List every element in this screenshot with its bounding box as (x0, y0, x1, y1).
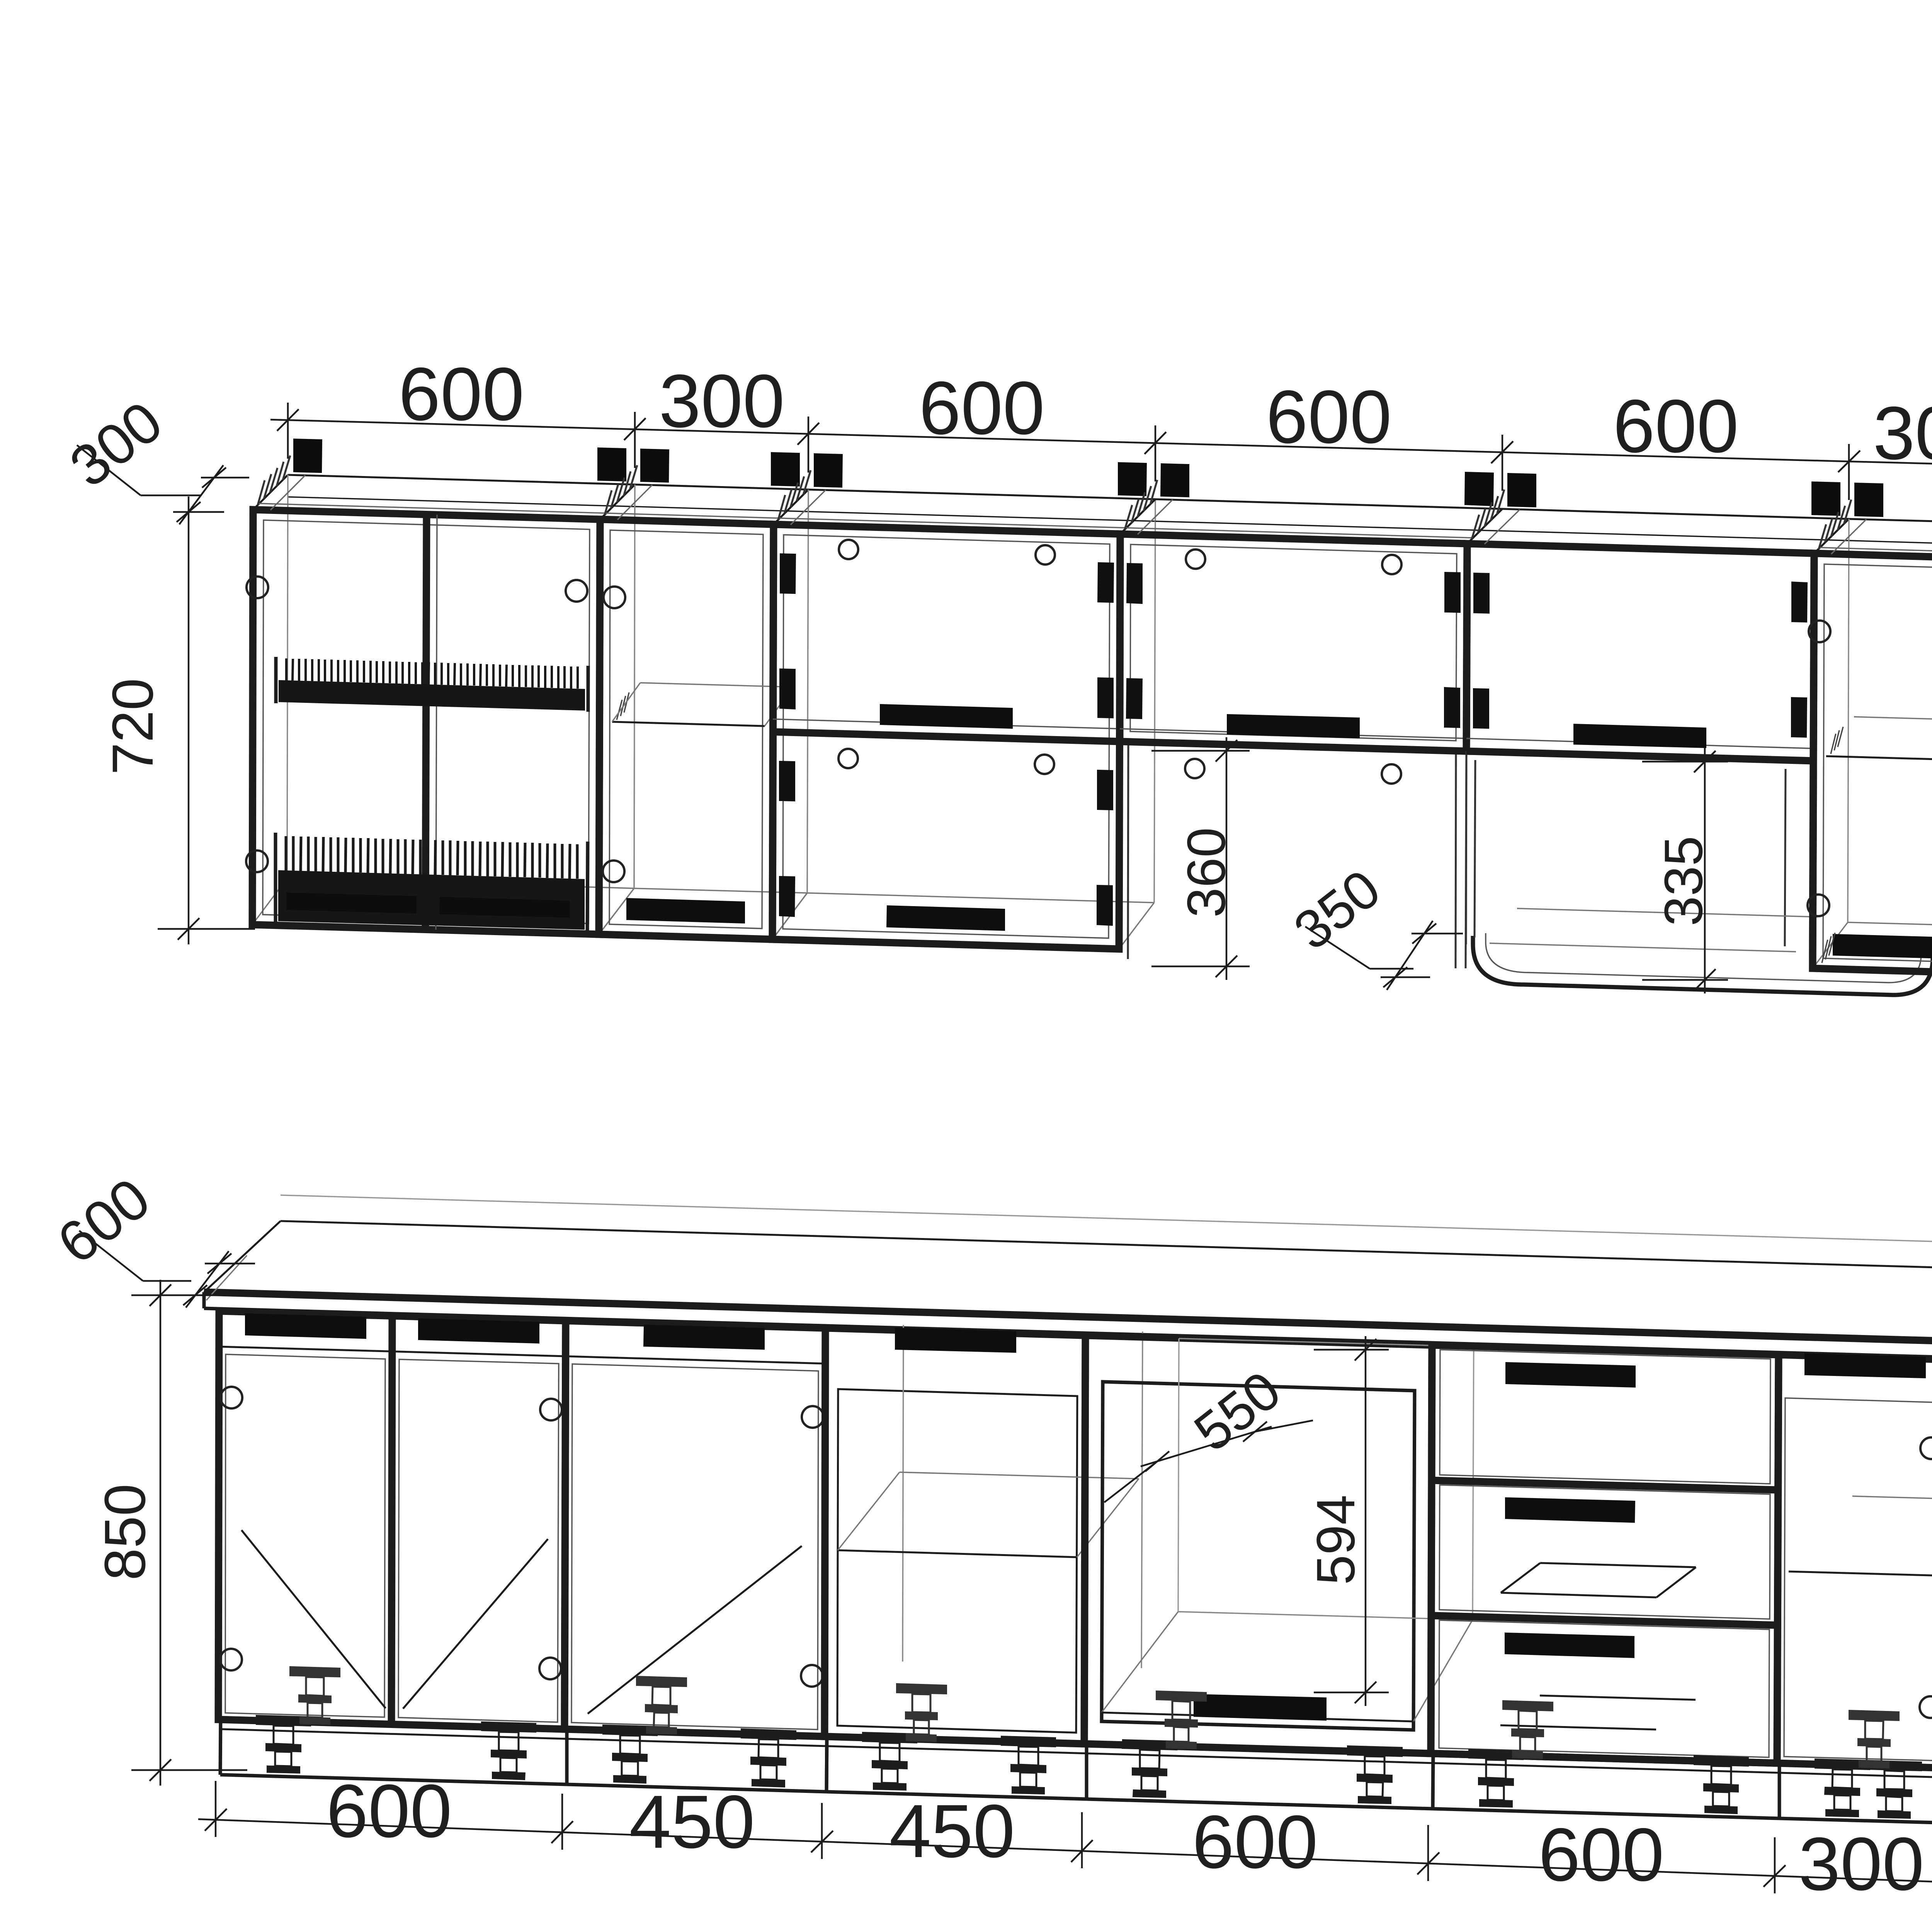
svg-text:600: 600 (1613, 384, 1738, 468)
svg-text:450: 450 (629, 1780, 755, 1864)
svg-text:594: 594 (1305, 1495, 1366, 1585)
svg-text:300: 300 (659, 359, 784, 443)
svg-text:300: 300 (1798, 1822, 1924, 1906)
svg-text:335: 335 (1653, 836, 1714, 926)
svg-text:360: 360 (1176, 827, 1236, 918)
svg-text:720: 720 (100, 678, 165, 775)
svg-text:600: 600 (1538, 1813, 1664, 1897)
svg-text:850: 850 (92, 1484, 157, 1580)
svg-text:600: 600 (398, 352, 524, 436)
svg-text:450: 450 (889, 1789, 1015, 1873)
svg-text:600: 600 (1192, 1800, 1318, 1884)
svg-text:300: 300 (1873, 391, 1932, 475)
svg-text:600: 600 (1266, 375, 1391, 459)
svg-text:600: 600 (919, 366, 1044, 450)
svg-text:600: 600 (326, 1769, 452, 1853)
